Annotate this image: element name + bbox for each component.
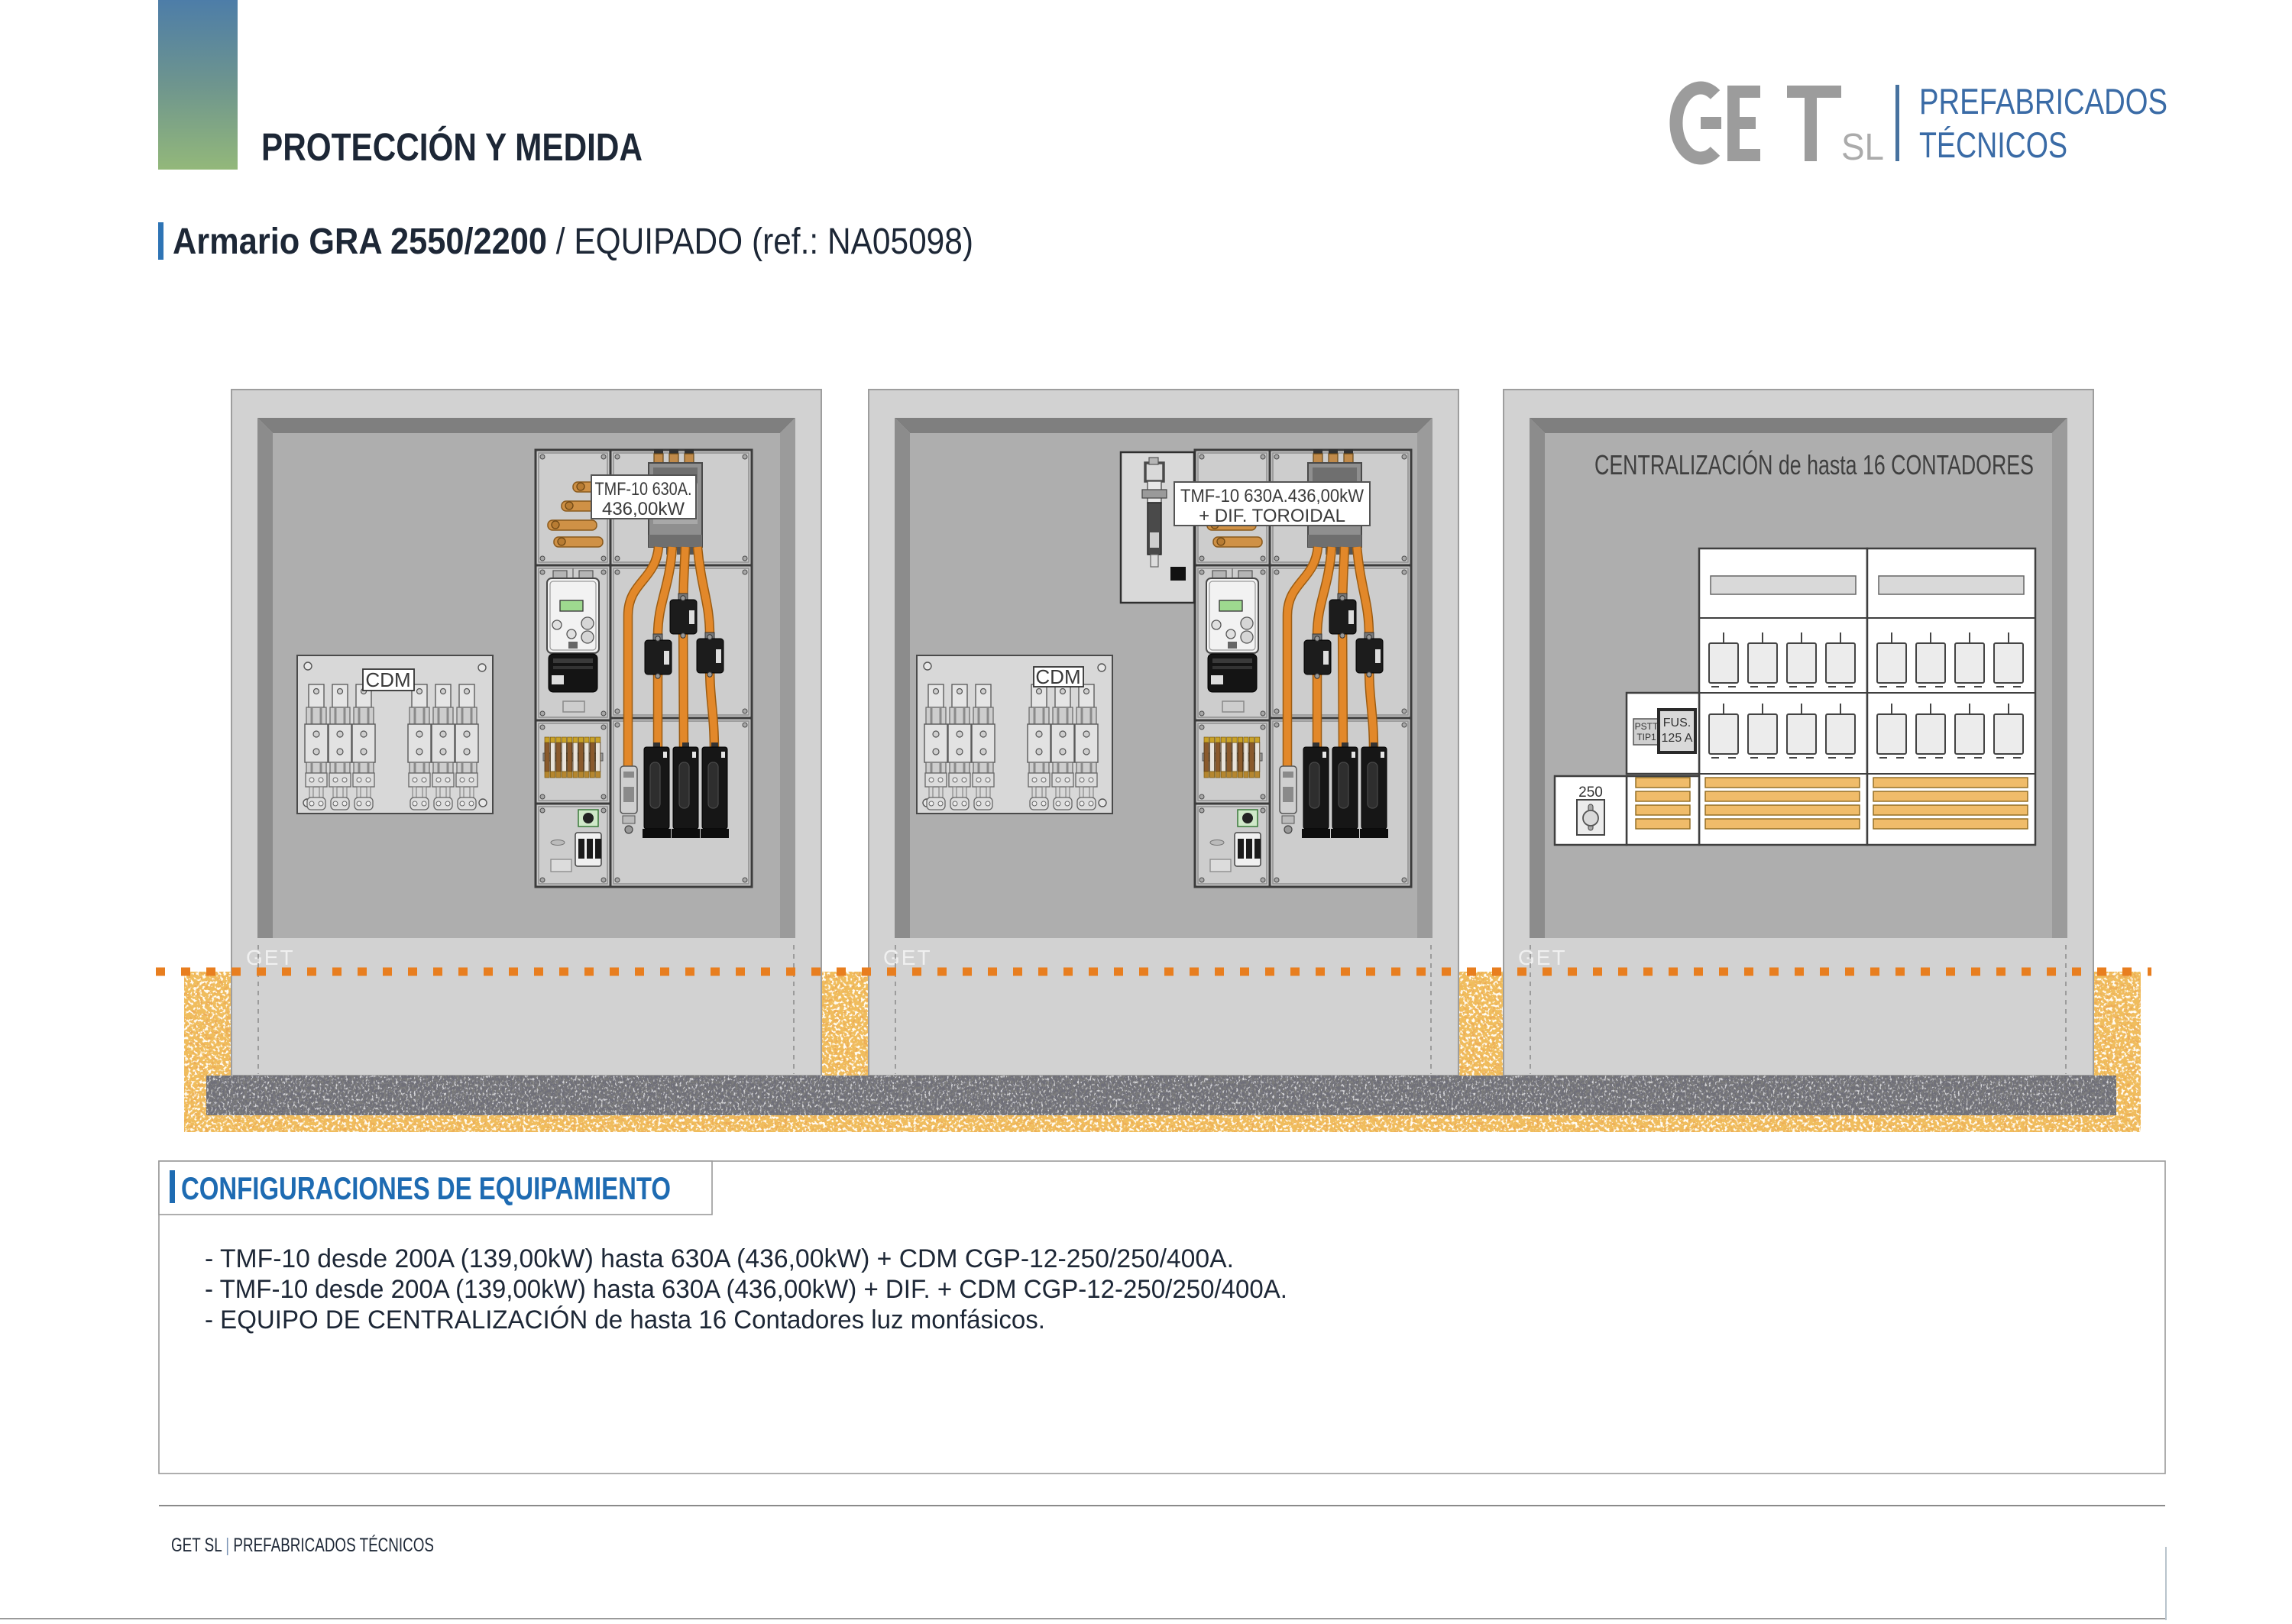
svg-text:PROTECCIÓN Y MEDIDA: PROTECCIÓN Y MEDIDA — [261, 125, 643, 169]
svg-text:250: 250 — [1578, 785, 1603, 801]
svg-text:GET: GET — [246, 946, 295, 969]
svg-text:TMF-10 630A.: TMF-10 630A. — [595, 479, 692, 500]
svg-text:GET: GET — [883, 946, 932, 969]
svg-text:PREFABRICADOS: PREFABRICADOS — [1919, 81, 2167, 121]
svg-text:- TMF-10 desde 200A (139,00kW): - TMF-10 desde 200A (139,00kW) hasta 630… — [205, 1275, 1287, 1304]
svg-text:CONFIGURACIONES DE EQUIPAMIENT: CONFIGURACIONES DE EQUIPAMIENTO — [181, 1170, 671, 1206]
svg-text:- EQUIPO DE CENTRALIZACIÓN de: - EQUIPO DE CENTRALIZACIÓN de hasta 16 C… — [205, 1305, 1045, 1334]
svg-text:TIP1: TIP1 — [1636, 732, 1656, 742]
svg-text:CENTRALIZACIÓN de hasta 16 CON: CENTRALIZACIÓN de hasta 16 CONTADORES — [1594, 449, 2034, 480]
svg-text:PSTT: PSTT — [1635, 721, 1659, 732]
svg-text:GET SL | PREFABRICADOS TÉCNICO: GET SL | PREFABRICADOS TÉCNICOS — [171, 1534, 434, 1556]
svg-text:FUS.: FUS. — [1663, 717, 1691, 730]
svg-text:+ DIF. TOROIDAL: + DIF. TOROIDAL — [1199, 506, 1345, 526]
svg-text:TÉCNICOS: TÉCNICOS — [1919, 125, 2067, 165]
svg-text:Armario GRA 2550/2200 / EQUIPA: Armario GRA 2550/2200 / EQUIPADO (ref.: … — [173, 222, 973, 262]
svg-text:125 A: 125 A — [1662, 732, 1693, 745]
svg-text:GET: GET — [1518, 946, 1567, 969]
svg-text:436,00kW: 436,00kW — [602, 499, 685, 519]
svg-text:CDM: CDM — [365, 668, 410, 691]
svg-text:TMF-10 630A.436,00kW: TMF-10 630A.436,00kW — [1180, 486, 1364, 506]
svg-text:SL: SL — [1841, 127, 1884, 168]
svg-text:CDM: CDM — [1035, 665, 1080, 688]
svg-text:- TMF-10 desde 200A (139,00kW): - TMF-10 desde 200A (139,00kW) hasta 630… — [205, 1244, 1234, 1273]
